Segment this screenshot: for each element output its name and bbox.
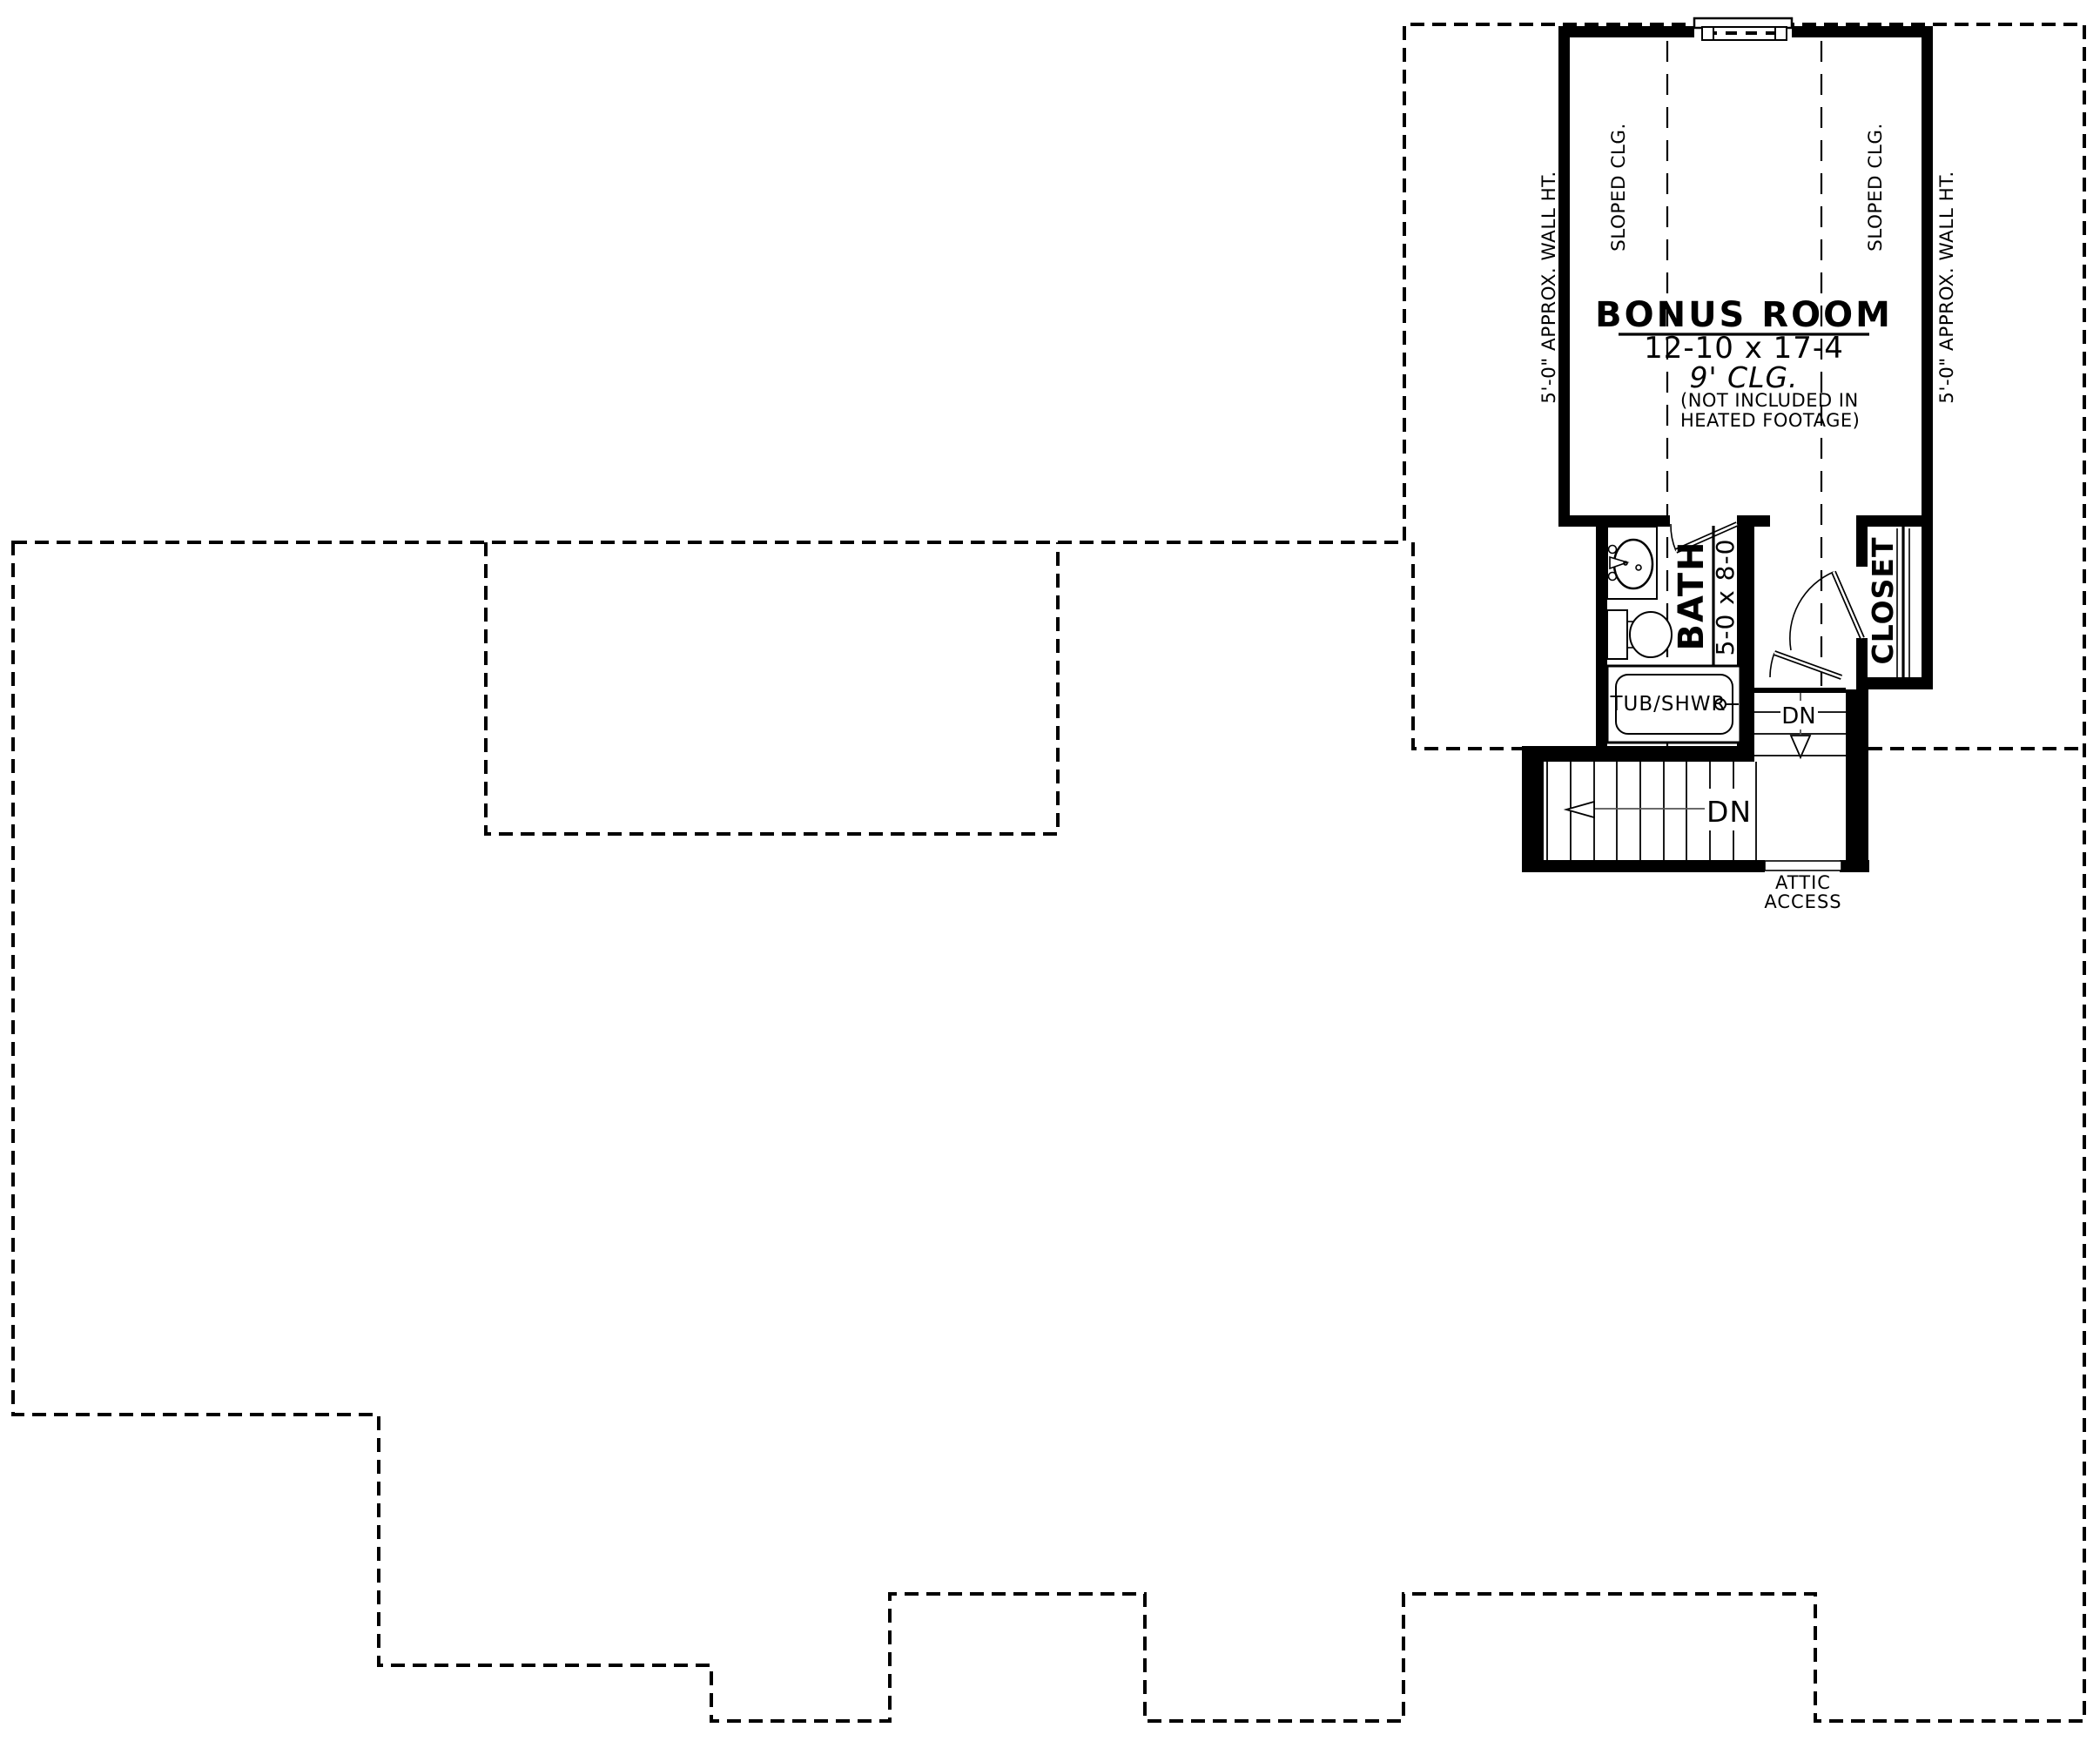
window-jamb-right [1775,27,1787,40]
closet-right-wall [1922,527,1933,689]
attic-access-opening [1765,861,1841,870]
attic-access-label-line1: ATTIC [1775,872,1831,893]
bath-title: BATH [1672,540,1712,650]
closet-top-wall [1856,515,1933,527]
stair-landing-door [1770,653,1841,677]
bonus-room-note-line1: (NOT INCLUDED IN [1680,390,1859,411]
stair-down-label-upper: DN [1781,703,1815,729]
bonus-room-note-line2: HEATED FOOTAGE) [1680,410,1860,431]
roof-outline [13,24,2084,1721]
toilet-bowl [1630,612,1672,657]
bath-dimensions: 5-0 x 8-0 [1711,539,1740,656]
stair-bottom-wall-left [1522,860,1765,872]
wall-height-label-left: 5'-0" APPROX. WALL HT. [1538,171,1560,403]
roof-segment-stair-left [1413,542,1522,749]
attic-access-label-line2: ACCESS [1764,891,1841,912]
sloped-ceiling-label-left: SLOPED CLG. [1608,123,1630,252]
sloped-ceiling-label-right: SLOPED CLG. [1865,123,1887,252]
window-jamb-left [1702,27,1713,40]
wall-height-label-right: 5'-0" APPROX. WALL HT. [1936,171,1958,403]
stair-direction-arrow-main [1566,802,1705,817]
stair-down-label-main: DN [1706,795,1752,829]
roof-notch-upper-left [486,542,1058,834]
stair-right-wall [1846,689,1868,872]
tub-shower-label: TUB/SHWR [1609,693,1726,716]
floor-plan-sheet: BONUS ROOM 12-10 x 17-4 9' CLG. (NOT INC… [0,0,2100,1741]
closet-bottom-wall [1856,677,1933,689]
bonus-top-wall-left [1558,26,1694,37]
closet-door-leaf-core [1834,572,1862,638]
stair-left-wall [1522,746,1544,872]
closet-title: CLOSET [1866,537,1900,665]
bonus-window [1694,18,1792,40]
bonus-right-wall [1922,26,1933,527]
arrow-head-south [1791,736,1810,757]
roof-outline-perimeter [13,24,2084,1721]
bath-bottom-wall [1522,746,1754,762]
bath-left-wall [1596,515,1607,762]
stair-landing-door-arc [1770,653,1774,677]
stair-landing-door-leaf-core [1774,653,1841,677]
bonus-top-wall-right [1792,26,1933,37]
closet-door-arc [1790,572,1834,650]
bonus-bottom-wall-left [1558,515,1670,527]
floor-plan-drawing: BONUS ROOM 12-10 x 17-4 9' CLG. (NOT INC… [0,0,2100,1741]
closet-door [1790,572,1862,650]
stair-header-bar [1753,688,1846,693]
bonus-room-title: BONUS ROOM [1595,295,1893,335]
toilet-tank [1607,610,1627,659]
